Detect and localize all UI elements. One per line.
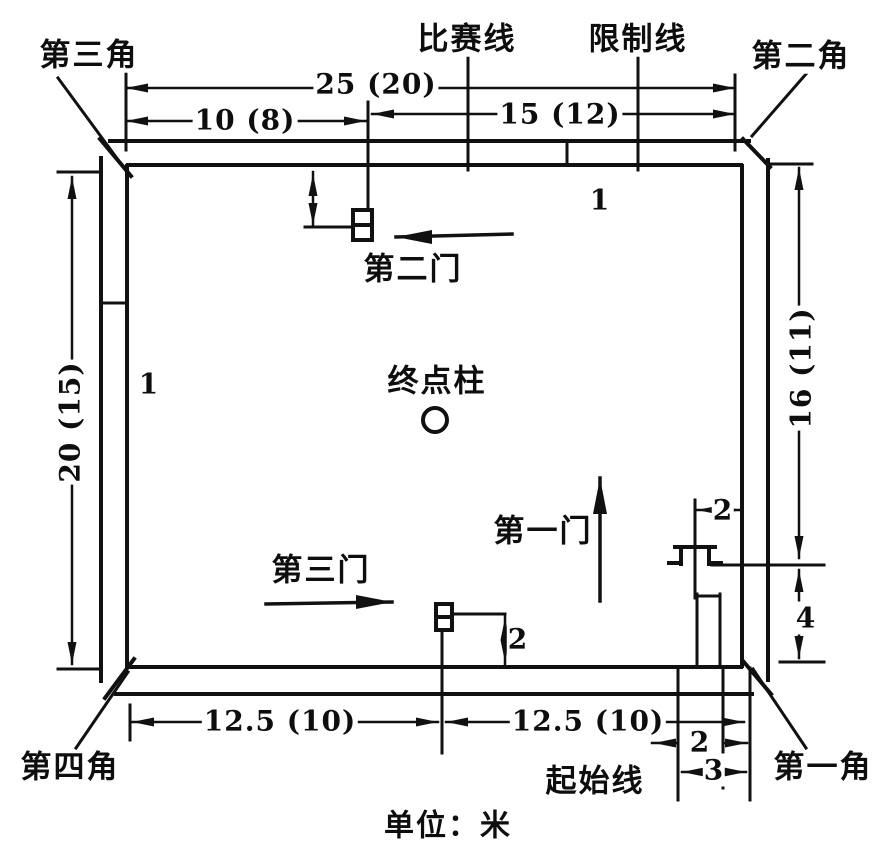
corner-leader-lines [58,58,806,748]
gate2-direction-arrow [396,230,512,244]
corner-label-third: 第三角 [38,40,141,73]
gate2-marker [353,210,372,240]
dim-top-total: 25 (20) [313,68,438,101]
dim-bottom-left: 12.5 (10) [202,705,358,738]
gate1-direction-arrow [593,478,607,601]
gate3-direction-arrow [266,595,392,609]
dim-gate3-to-wall: 2 [507,623,529,656]
gate1-label: 第一门 [492,516,595,549]
dim-right-corner-height: 4 [795,602,817,635]
limit-line-label: 限制线 [587,24,690,57]
dim-right-height: 16 (11) [785,305,818,430]
corner-label-first: 第一角 [772,752,875,785]
extension-lines [58,68,824,800]
dim-top-left: 10 (8) [193,104,298,137]
corner-label-second: 第二角 [750,41,853,74]
dim-bottom-right: 12.5 (10) [510,705,666,738]
gate2-label: 第二门 [362,254,465,287]
finish-post-label: 终点柱 [386,366,489,399]
gate3-marker [436,604,452,630]
dim-left-height: 20 (15) [54,359,87,484]
competition-line-label: 比赛线 [416,24,519,57]
corner-label-fourth: 第四角 [19,752,122,785]
start-line-label: 起始线 [544,766,647,799]
field-diagram: 第三角 第二角 第四角 第一角 比赛线 限制线 起始线 第二门 第一门 第三门 … [0,0,888,860]
dim-top-right: 15 (12) [497,98,622,131]
dim-gate1-to-wall: 2 [712,494,734,527]
finish-post-circle [423,408,447,432]
dim-start-zone-width: 3 [703,754,725,787]
dim-wall-line-left: 1 [138,368,160,401]
dim-wall-line-top: 1 [589,184,611,217]
unit-note: 单位：米 [382,810,514,842]
gate3-label: 第三门 [270,555,373,588]
field-drawing [0,0,888,860]
